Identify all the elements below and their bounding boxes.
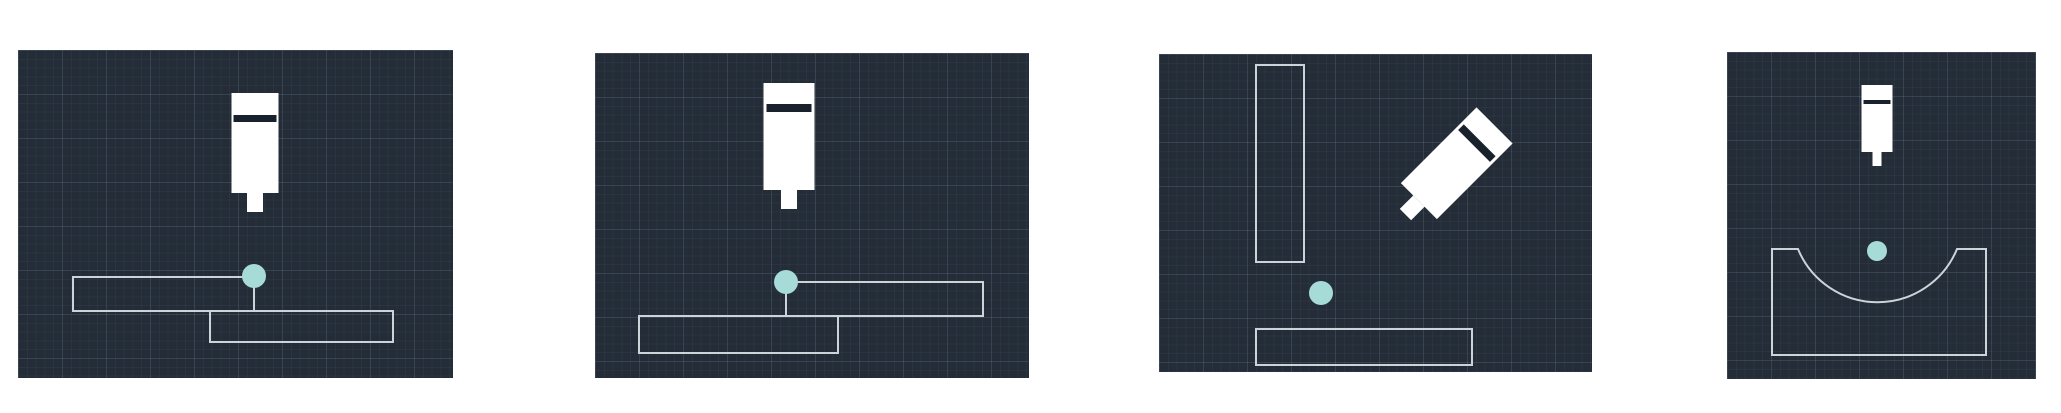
workpiece-plate [73,277,254,311]
weld-point-marker [774,270,798,294]
workpiece-plate [210,311,393,342]
welding-torch-icon [1387,107,1512,232]
workpiece-groove [1772,249,1986,355]
viewport-drawing [1159,54,1592,372]
welding-torch-icon [764,83,815,209]
welding-torch-icon [232,93,279,212]
weld-point-marker [1867,241,1887,261]
torch-band [767,104,812,112]
torch-band [1864,100,1891,104]
torch-nozzle [1873,152,1882,166]
torch-body [764,83,815,190]
torch-body [1862,85,1893,152]
torch-nozzle [247,193,263,212]
workpiece-plate [1256,329,1472,365]
workpiece-plate [786,282,983,316]
viewport-drawing [595,53,1029,378]
weld-point-marker [1309,281,1333,305]
torch-body [232,93,279,193]
weld-scenario-panel-concave-groove-joint[interactable] [1727,52,2036,379]
weld-scenario-panel-corner-joint-angled-torch[interactable] [1159,54,1592,372]
torch-band [234,115,277,122]
viewport-drawing [1727,52,2036,379]
workpiece-plate [1256,65,1304,262]
workpiece-plate [639,316,838,353]
viewport-drawing [18,50,453,378]
welding-torch-icon [1862,85,1893,166]
weld-scenario-panel-lap-joint-upper-left[interactable] [18,50,453,378]
weld-scenario-panel-lap-joint-upper-right[interactable] [595,53,1029,378]
scenario-thumbnails-row [0,0,2061,413]
torch-nozzle [781,190,797,209]
weld-point-marker [242,264,266,288]
